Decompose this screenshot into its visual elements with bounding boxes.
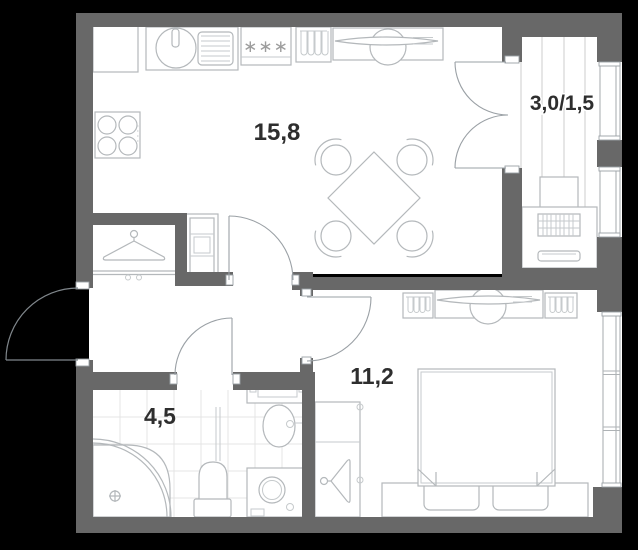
chair-icon	[470, 288, 506, 324]
bedroom-area-label: 11,2	[350, 363, 394, 389]
desk-with-chair-icon	[333, 28, 443, 65]
freezer-stars-icon: ∗∗∗	[243, 37, 289, 57]
bed-platform	[382, 483, 588, 517]
bathroom-area-label: 4,5	[144, 403, 176, 429]
balcony-area-label: 3,0/1,5	[530, 92, 595, 115]
kitchen-sink-icon	[146, 27, 238, 70]
four-burner-hob-icon	[95, 112, 140, 158]
console-wardrobe-right	[545, 293, 577, 318]
chair-icon	[370, 29, 406, 65]
wardrobe-cabinet-icon	[296, 27, 331, 62]
floor-plan-canvas: ∗∗∗	[0, 0, 638, 550]
floor-plan: ∗∗∗	[0, 0, 638, 550]
hallway-floor	[93, 286, 300, 372]
washing-machine-icon	[247, 468, 308, 517]
fridge-icon: ∗∗∗	[241, 27, 291, 65]
kitchen-living-area-label: 15,8	[254, 119, 301, 146]
bedroom-wardrobe	[315, 402, 363, 517]
tall-cabinet	[186, 214, 218, 277]
bed-blanket	[418, 369, 555, 486]
console-wardrobe-left	[403, 293, 433, 318]
